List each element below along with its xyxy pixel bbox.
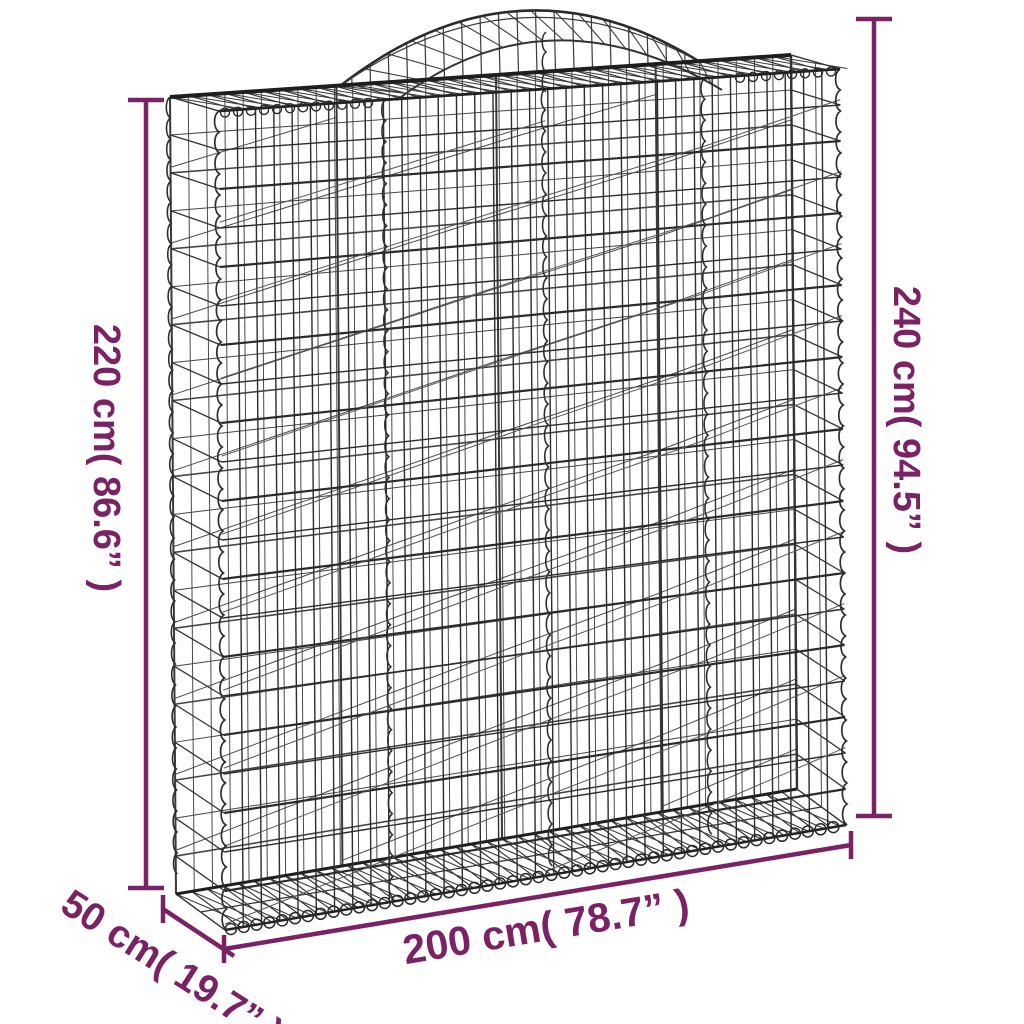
basket-arch xyxy=(340,10,722,100)
gabion-basket-illustration xyxy=(0,0,1024,1024)
product-image: 220 cm( 86.6” ) 240 cm( 94.5” ) 200 cm( … xyxy=(0,0,1024,1024)
dimension-label-height-right: 240 cm( 94.5” ) xyxy=(887,286,925,554)
basket-top-band xyxy=(170,55,847,111)
dimension-label-height-left: 220 cm( 86.6” ) xyxy=(87,324,125,592)
